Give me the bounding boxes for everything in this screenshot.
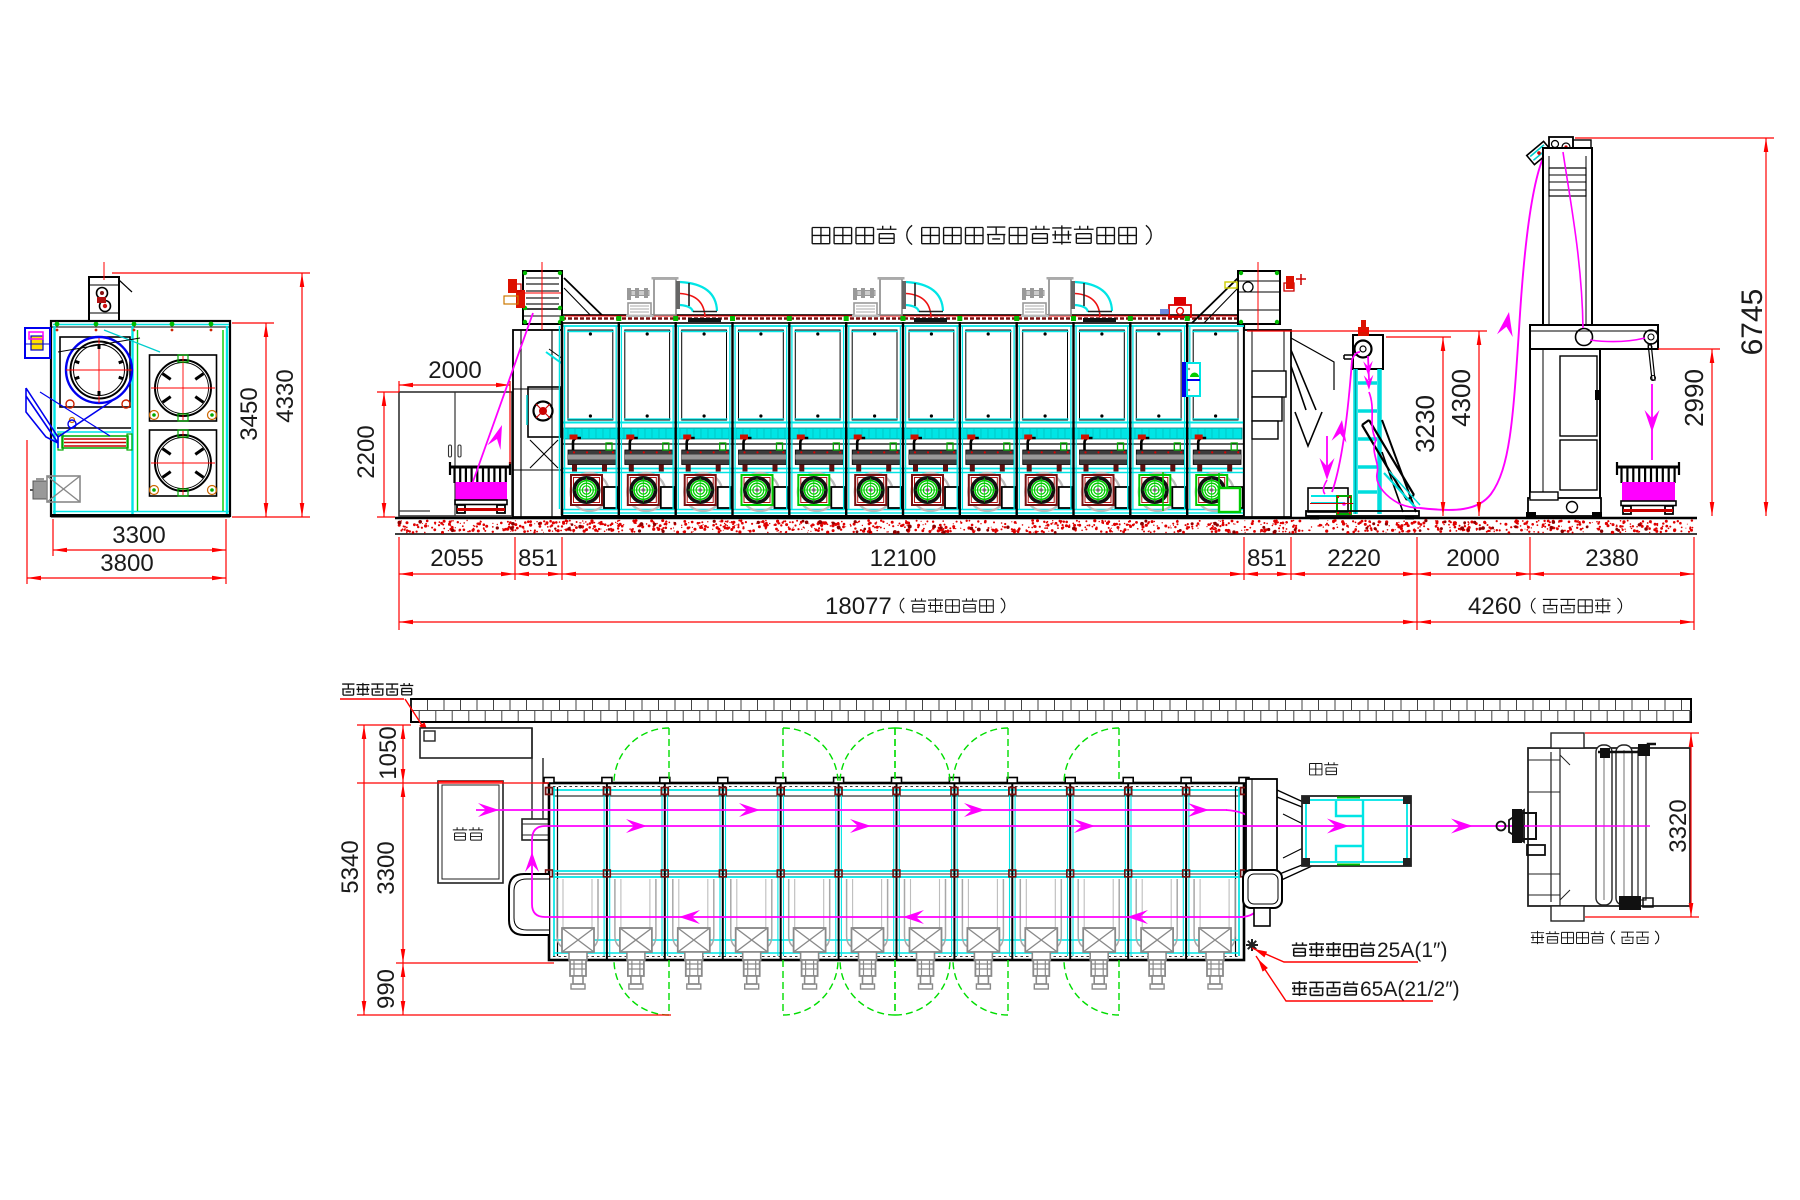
svg-text:3320: 3320 — [1665, 799, 1692, 852]
svg-text:2055: 2055 — [430, 545, 483, 572]
svg-text:5340: 5340 — [337, 840, 364, 893]
svg-text:851: 851 — [518, 545, 558, 572]
svg-text:3230: 3230 — [1410, 395, 1440, 453]
svg-text:3300: 3300 — [373, 841, 400, 894]
svg-text:65A(21/2″): 65A(21/2″) — [1360, 978, 1460, 1001]
svg-text:2200: 2200 — [353, 425, 380, 478]
svg-text:990: 990 — [373, 969, 400, 1009]
svg-text:1050: 1050 — [375, 726, 402, 779]
svg-text:18077: 18077 — [825, 593, 892, 620]
svg-text:2380: 2380 — [1585, 545, 1638, 572]
svg-text:2990: 2990 — [1679, 369, 1709, 427]
svg-text:3450: 3450 — [236, 387, 263, 440]
svg-text:3300: 3300 — [112, 522, 165, 549]
svg-text:12100: 12100 — [870, 545, 937, 572]
svg-text:25A(1″): 25A(1″) — [1377, 939, 1447, 962]
svg-text:4300: 4300 — [1446, 369, 1476, 427]
svg-text:2220: 2220 — [1327, 545, 1380, 572]
svg-text:851: 851 — [1247, 545, 1287, 572]
svg-text:4260: 4260 — [1468, 593, 1521, 620]
svg-text:6745: 6745 — [1736, 289, 1769, 356]
svg-text:2000: 2000 — [1446, 545, 1499, 572]
svg-text:2000: 2000 — [428, 357, 481, 384]
svg-text:4330: 4330 — [272, 369, 299, 422]
svg-text:3800: 3800 — [100, 550, 153, 577]
